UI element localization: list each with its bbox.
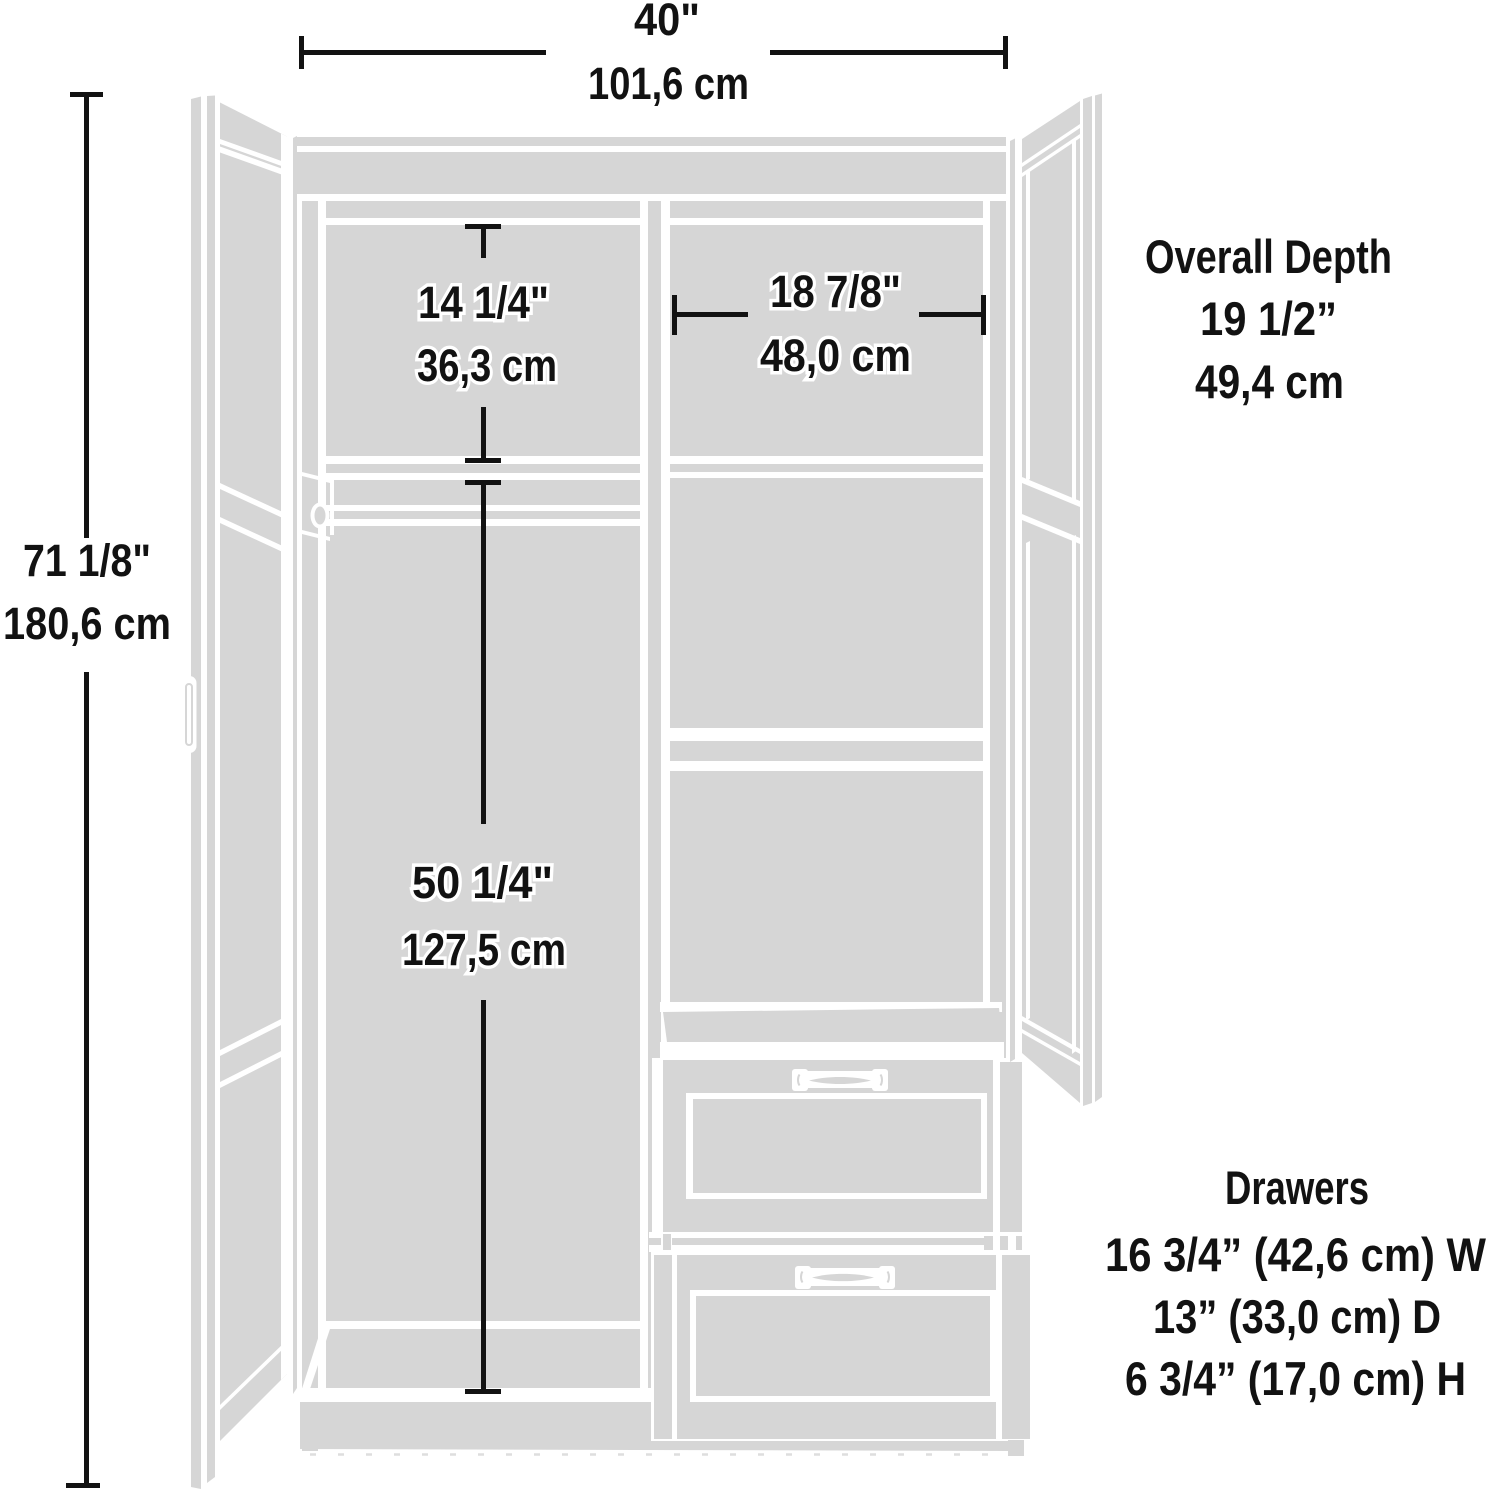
svg-text:50 1/4": 50 1/4" [412, 857, 553, 908]
svg-text:14 1/4": 14 1/4" [418, 277, 549, 328]
svg-text:19 1/2”: 19 1/2” [1200, 292, 1337, 345]
svg-text:40": 40" [634, 0, 700, 45]
svg-text:Drawers: Drawers [1225, 1161, 1369, 1214]
svg-text:Overall Depth: Overall Depth [1145, 230, 1392, 283]
svg-text:71 1/8": 71 1/8" [23, 535, 151, 586]
svg-text:127,5 cm: 127,5 cm [402, 924, 566, 975]
svg-text:48,0 cm: 48,0 cm [760, 330, 911, 381]
svg-text:18 7/8": 18 7/8" [770, 266, 901, 317]
svg-text:101,6 cm: 101,6 cm [588, 58, 749, 109]
svg-text:6 3/4” (17,0 cm) H: 6 3/4” (17,0 cm) H [1125, 1352, 1466, 1405]
svg-text:180,6 cm: 180,6 cm [3, 598, 171, 649]
svg-text:13” (33,0 cm) D: 13” (33,0 cm) D [1153, 1290, 1441, 1343]
svg-text:16 3/4” (42,6 cm) W: 16 3/4” (42,6 cm) W [1105, 1228, 1487, 1281]
svg-text:36,3 cm: 36,3 cm [417, 340, 557, 391]
svg-text:49,4 cm: 49,4 cm [1195, 355, 1344, 408]
